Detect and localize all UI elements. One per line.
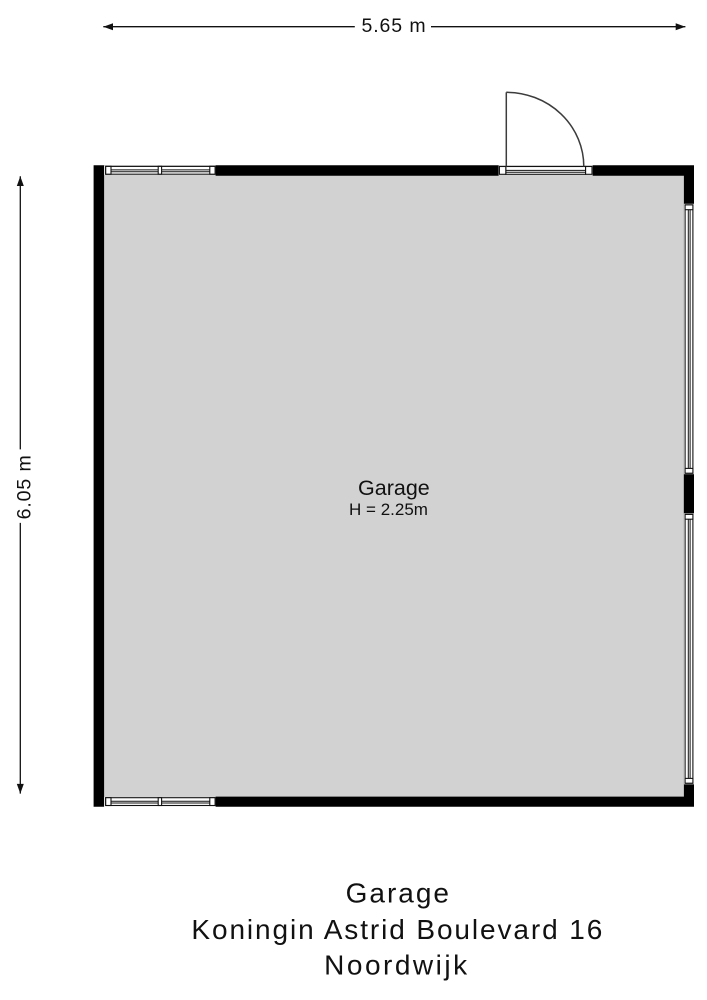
svg-text:Koningin Astrid Boulevard 16: Koningin Astrid Boulevard 16 [191,914,604,945]
svg-text:5.65 m: 5.65 m [361,15,426,37]
svg-text:Garage: Garage [346,878,451,909]
svg-text:Garage: Garage [358,476,430,500]
svg-text:6.05 m: 6.05 m [14,454,36,519]
svg-text:H = 2.25m: H = 2.25m [349,500,428,519]
svg-text:Noordwijk: Noordwijk [324,950,469,981]
